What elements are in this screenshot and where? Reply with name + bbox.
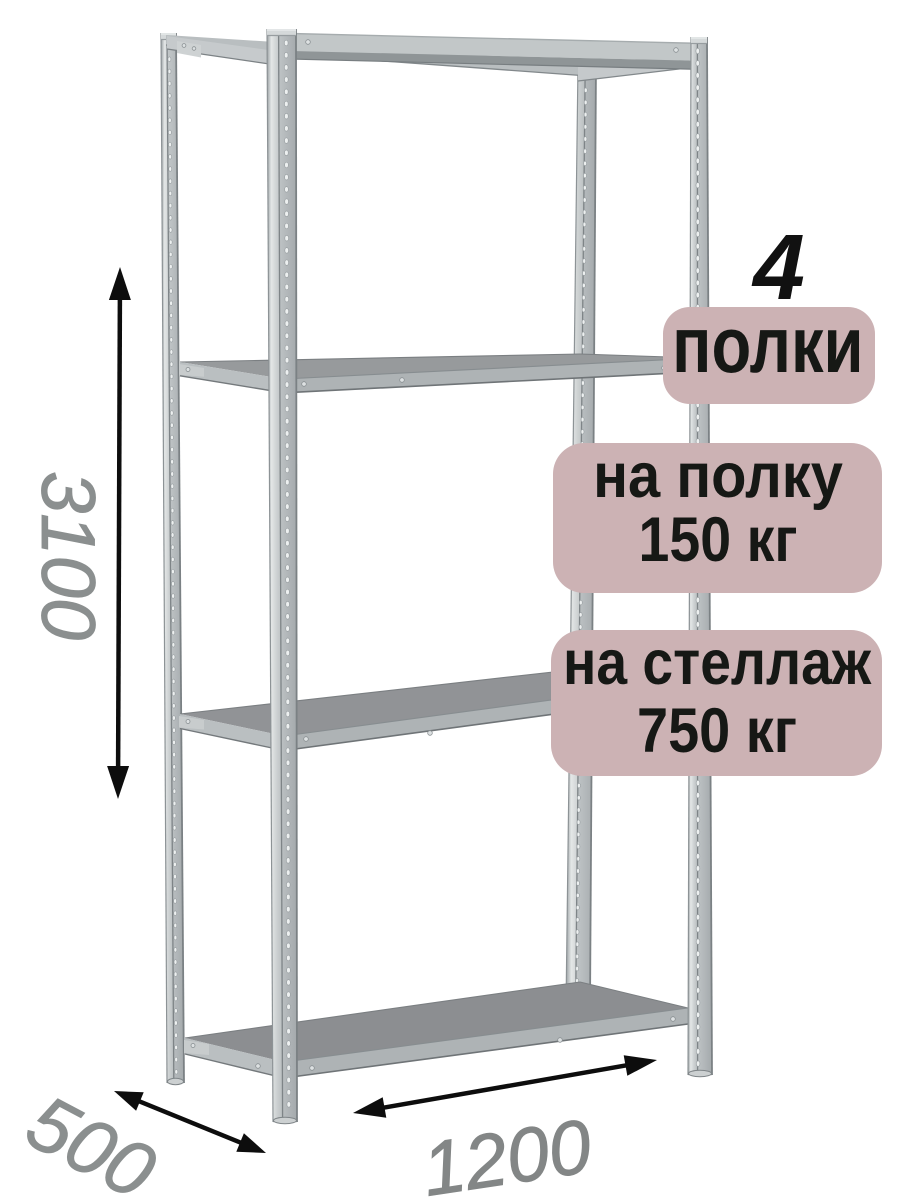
svg-text:1200: 1200 xyxy=(417,1104,597,1200)
svg-text:500: 500 xyxy=(13,1077,169,1200)
svg-text:3100: 3100 xyxy=(25,471,110,640)
